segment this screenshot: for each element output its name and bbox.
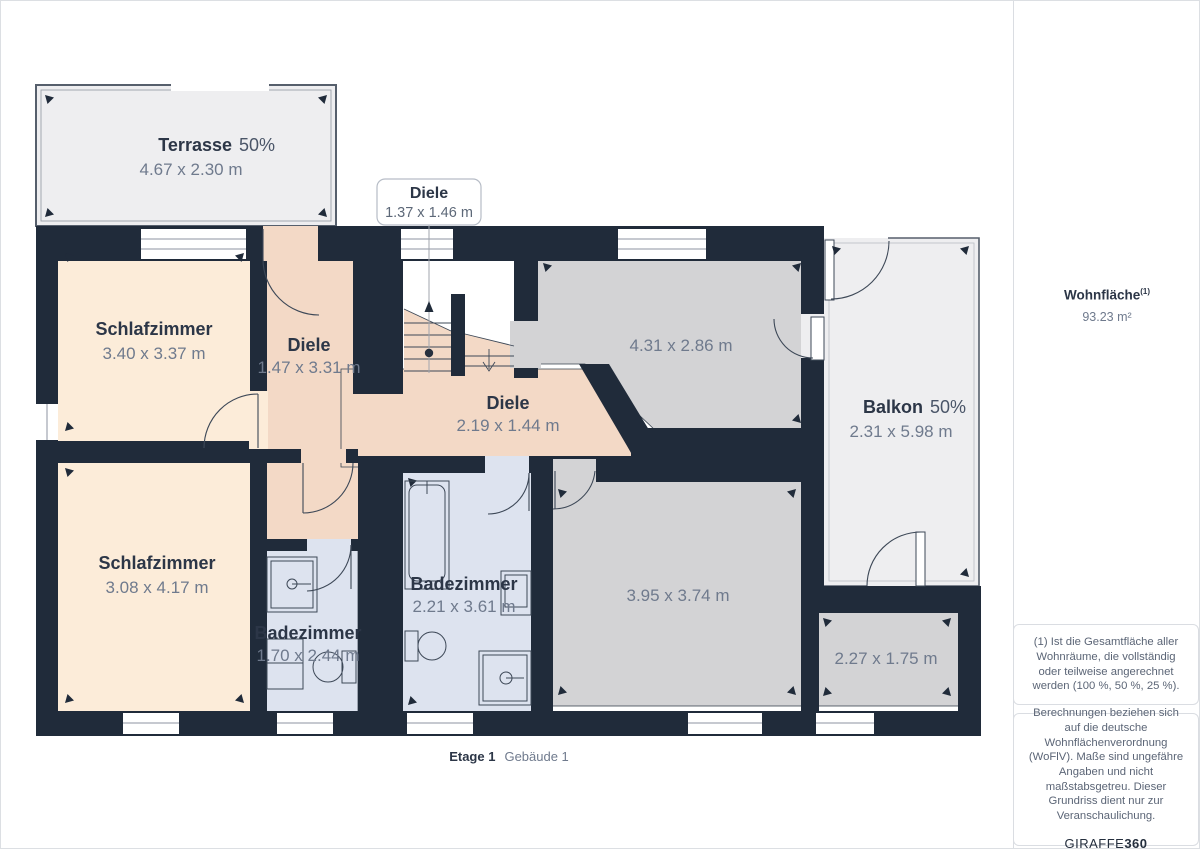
balkon-dims: 2.31 x 5.98 m bbox=[849, 422, 952, 441]
zimmer-1-dims: 4.31 x 2.86 m bbox=[629, 336, 732, 355]
leader-dot bbox=[425, 349, 433, 357]
balkon-name: Balkon bbox=[863, 397, 923, 417]
floor-label: Etage 1 bbox=[449, 749, 495, 764]
floor-caption: Etage 1 Gebäude 1 bbox=[379, 749, 639, 764]
building-label: Gebäude 1 bbox=[504, 749, 568, 764]
footnote-box-1: (1) Ist die Gesamtfläche aller Wohnräume… bbox=[1013, 624, 1199, 705]
callout-room-name: Diele bbox=[410, 185, 448, 202]
diele-1-name: Diele bbox=[287, 335, 330, 355]
diele-2-name: Diele bbox=[486, 393, 529, 413]
schlafzimmer-2-name: Schlafzimmer bbox=[98, 553, 215, 573]
floor-plan: Diele 1.37 x 1.46 m bbox=[1, 1, 1013, 849]
living-area-footnote-ref: (1) bbox=[1140, 287, 1150, 296]
logo-suffix: 360 bbox=[1124, 836, 1147, 849]
footnote-1-text: (1) Ist die Gesamtfläche aller Wohnräume… bbox=[1026, 635, 1186, 694]
logo-prefix: GIRAFFE bbox=[1064, 836, 1124, 849]
diele-1-dims: 1.47 x 3.31 m bbox=[257, 358, 360, 377]
balkon-percent: 50% bbox=[930, 397, 966, 417]
terrasse-dims: 4.67 x 2.30 m bbox=[139, 160, 242, 179]
floorplan-page: Diele 1.37 x 1.46 m bbox=[0, 0, 1200, 849]
terrasse-name: Terrasse bbox=[158, 135, 232, 155]
living-area-title: Wohnfläche(1) bbox=[1014, 287, 1200, 303]
footnote-2-text: Berechnungen beziehen sich auf die deuts… bbox=[1026, 706, 1186, 823]
giraffe360-logo: GIRAFFE360 bbox=[1026, 836, 1186, 849]
zimmer-3-dims: 2.27 x 1.75 m bbox=[834, 649, 937, 668]
footnote-box-2: Berechnungen beziehen sich auf die deuts… bbox=[1013, 713, 1199, 846]
terrasse-percent: 50% bbox=[239, 135, 275, 155]
diele-2-dims: 2.19 x 1.44 m bbox=[456, 416, 559, 435]
living-area-block: Wohnfläche(1) 93.23 m² bbox=[1014, 287, 1200, 324]
badezimmer-2-dims: 2.21 x 3.61 m bbox=[412, 597, 515, 616]
living-area-label: Wohnfläche bbox=[1064, 288, 1140, 303]
badezimmer-1-name: Badezimmer bbox=[254, 623, 361, 643]
schlafzimmer-2-dims: 3.08 x 4.17 m bbox=[105, 578, 208, 597]
schlafzimmer-1-dims: 3.40 x 3.37 m bbox=[102, 344, 205, 363]
zimmer-2-dims: 3.95 x 3.74 m bbox=[626, 586, 729, 605]
badezimmer-2-name: Badezimmer bbox=[410, 574, 517, 594]
callout-room-dims: 1.37 x 1.46 m bbox=[385, 205, 473, 221]
badezimmer-1-dims: 1.70 x 2.44 m bbox=[256, 646, 359, 665]
living-area-value: 93.23 m² bbox=[1014, 310, 1200, 324]
schlafzimmer-1-name: Schlafzimmer bbox=[95, 319, 212, 339]
